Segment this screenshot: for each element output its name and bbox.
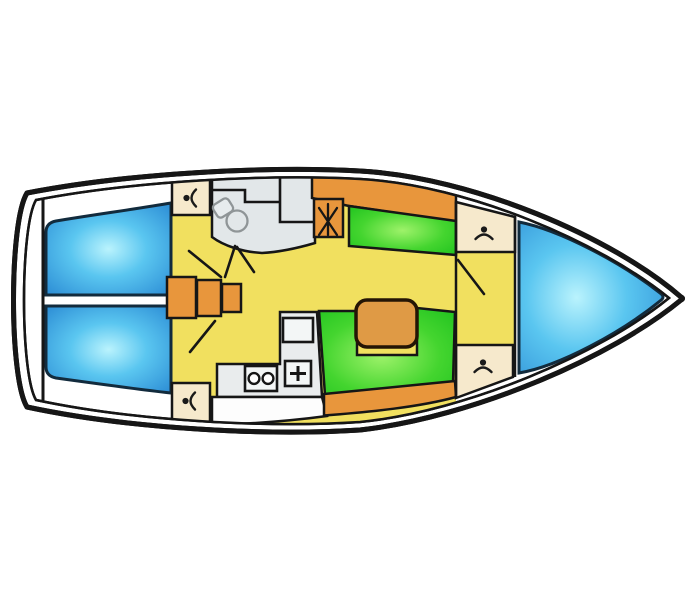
saloon-table [356,300,417,347]
stove-icon [245,366,277,391]
sink-basin [283,318,313,342]
boat-plan-svg [0,0,700,600]
aft-berth-starboard [46,306,171,393]
boat-plan-canvas [0,0,700,600]
sink-plus-icon [285,361,311,386]
companionway-steps [167,277,241,318]
